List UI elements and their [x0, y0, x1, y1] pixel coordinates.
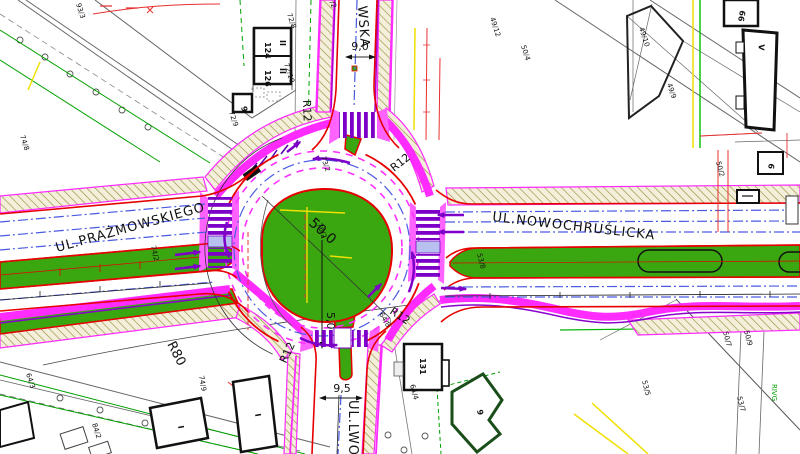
parcel-label: 53/5	[640, 379, 652, 396]
building-label: 131	[418, 358, 427, 375]
crosswalk-west-lower	[208, 248, 232, 268]
crosswalk-east-refuge	[416, 241, 440, 253]
building-I-b: I	[233, 376, 277, 452]
building-9-nw: 9	[233, 94, 252, 113]
central-island	[262, 189, 392, 322]
parcel-label: 74/8	[18, 134, 30, 151]
crosswalk-west-refuge	[208, 236, 232, 247]
building-131: 131	[394, 344, 449, 390]
labels: UL.PRAŻMOWSKIEGO UL.NOWOCHRUŚLICKA UL.LW…	[18, 0, 778, 454]
building-label: 124	[263, 42, 272, 59]
crosswalk-east-upper	[416, 207, 440, 240]
parcel-label: 93/3	[74, 2, 86, 19]
building-label: 126	[263, 70, 272, 87]
site-plan: 124 II 126 II 9 66 V 6 131 9 I	[0, 0, 800, 454]
shed	[786, 196, 798, 224]
parcel-label: 50/2	[714, 160, 726, 177]
parcel-label: 49/9	[665, 82, 677, 99]
dim-south-width: 9,5	[333, 382, 351, 395]
parcel-label: 50/7	[721, 330, 733, 347]
parcel-label: 49/10	[637, 26, 651, 48]
building-I-a: I	[150, 398, 208, 448]
street-label-south: UL.LWOWSKA	[345, 400, 360, 454]
crosswalk-north	[339, 112, 377, 138]
parcel-label: 49/12	[488, 16, 502, 38]
building-V: V	[736, 30, 777, 130]
parcel-label: 50/4	[519, 44, 532, 62]
building-corner	[0, 402, 34, 447]
parcel-label: 74/9	[197, 375, 208, 392]
radius-label: R12	[300, 100, 314, 122]
building-66: 66	[724, 0, 758, 26]
radius-label: R80	[163, 339, 188, 369]
parcel-label: 84/2	[90, 422, 102, 439]
street-label-east: UL.NOWOCHRUŚLICKA	[492, 209, 657, 243]
crosswalk-west-upper	[208, 197, 232, 235]
crosswalk-south-right	[352, 330, 370, 347]
building-storeys: II	[278, 40, 287, 46]
crosswalk-east-lower	[416, 254, 440, 280]
parcel-label: 53/7	[735, 395, 747, 412]
dim-north-width: 9,0	[351, 40, 369, 53]
building-6: 6	[758, 152, 783, 174]
landuse-label: RIVG	[770, 384, 778, 401]
dim-splitter-width: 5,0	[324, 312, 337, 330]
parcel-label: 64/3	[24, 372, 36, 389]
site-plan-canvas: 124 II 126 II 9 66 V 6 131 9 I	[0, 0, 800, 454]
building-9-se: 9	[452, 374, 502, 452]
shed	[89, 441, 112, 454]
shed	[60, 427, 88, 450]
